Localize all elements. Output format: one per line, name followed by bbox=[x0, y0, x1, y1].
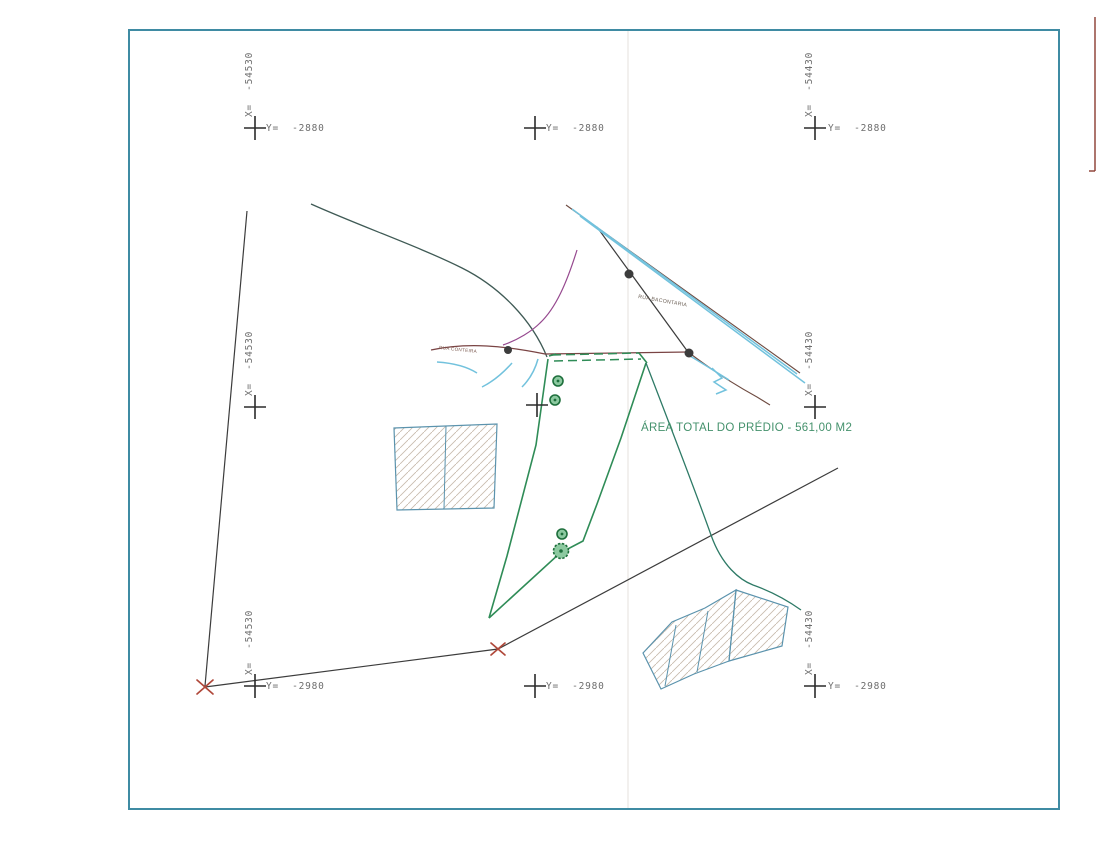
grid-x-label: X= -54430 bbox=[804, 331, 815, 396]
grid-y-label: Y= -2880 bbox=[266, 123, 325, 134]
road-continuation bbox=[688, 352, 770, 405]
culvert-arc-2 bbox=[482, 363, 512, 387]
site-plan-canvas: X= -54530 Y= -2880 Y= -2880 X= -54430 Y=… bbox=[0, 0, 1097, 842]
stream-branch bbox=[690, 356, 729, 380]
grid-cross-bottom-center: Y= -2980 bbox=[524, 674, 605, 698]
area-total-label: ÁREA TOTAL DO PRÉDIO - 561,00 M2 bbox=[641, 421, 852, 434]
point-marker bbox=[685, 349, 694, 358]
stream-zigzag-symbol bbox=[712, 368, 726, 394]
curved-boundary-line bbox=[311, 204, 547, 357]
paper-edge-artifact bbox=[1089, 17, 1095, 171]
lot-boundary bbox=[489, 353, 801, 618]
point-marker bbox=[504, 346, 512, 354]
grid-cross-mid-center bbox=[526, 393, 548, 417]
grid-cross-top-center: Y= -2880 bbox=[524, 116, 605, 140]
grid-x-label: X= -54530 bbox=[244, 331, 255, 396]
lot-edge-east bbox=[489, 363, 646, 618]
buildings bbox=[394, 424, 788, 689]
grid-y-label: Y= -2980 bbox=[828, 681, 887, 692]
stream-line-1 bbox=[572, 209, 797, 374]
tree-icon bbox=[557, 529, 567, 539]
grid-y-label: Y= -2880 bbox=[546, 123, 605, 134]
grid-x-label: X= -54530 bbox=[244, 52, 255, 117]
drawing-border-frame bbox=[129, 30, 1059, 809]
building-left bbox=[394, 424, 497, 510]
grid-cross-bottom-right: X= -54430 Y= -2980 bbox=[804, 610, 887, 698]
culvert-arc-3 bbox=[522, 359, 538, 387]
lot-corner-tick bbox=[639, 353, 647, 363]
street-name-label: RUA CONTEIRA bbox=[439, 345, 478, 354]
road-edge-diagonal bbox=[597, 227, 688, 352]
grid-y-label: Y= -2980 bbox=[546, 681, 605, 692]
tree-icon bbox=[554, 544, 569, 559]
point-markers bbox=[504, 270, 694, 358]
grid-cross-mid-left: X= -54530 bbox=[244, 331, 266, 419]
grid-x-label: X= -54430 bbox=[804, 52, 815, 117]
grid-cross-top-right: X= -54430 Y= -2880 bbox=[804, 52, 887, 140]
water-lines bbox=[437, 209, 805, 394]
roads bbox=[431, 205, 800, 405]
west-boundary-line bbox=[205, 211, 247, 686]
point-marker bbox=[625, 270, 634, 279]
grid-crosses: X= -54530 Y= -2880 Y= -2880 X= -54430 Y=… bbox=[244, 52, 887, 698]
grid-x-label: X= -54430 bbox=[804, 610, 815, 675]
grid-cross-bottom-left: X= -54530 Y= -2980 bbox=[244, 610, 325, 698]
grid-y-label: Y= -2980 bbox=[266, 681, 325, 692]
building-cluster-southeast bbox=[643, 590, 788, 689]
road-curve-magenta bbox=[503, 250, 577, 345]
fence-curve-east bbox=[646, 363, 801, 610]
grid-y-label: Y= -2880 bbox=[828, 123, 887, 134]
survey-mark-x-icon bbox=[491, 643, 505, 655]
scanned-site-plan-page: X= -54530 Y= -2880 Y= -2880 X= -54430 Y=… bbox=[0, 0, 1097, 842]
grid-cross-mid-right: X= -54430 bbox=[804, 331, 826, 419]
grid-cross-top-left: X= -54530 Y= -2880 bbox=[244, 52, 325, 140]
lot-edge-west bbox=[489, 359, 548, 618]
street-name-label: RUA BACONTARIA bbox=[638, 294, 688, 309]
culvert-arc-1 bbox=[437, 362, 477, 373]
tree-icon bbox=[553, 376, 563, 386]
grid-x-label: X= -54530 bbox=[244, 610, 255, 675]
trees bbox=[550, 376, 569, 559]
tree-icon bbox=[550, 395, 560, 405]
